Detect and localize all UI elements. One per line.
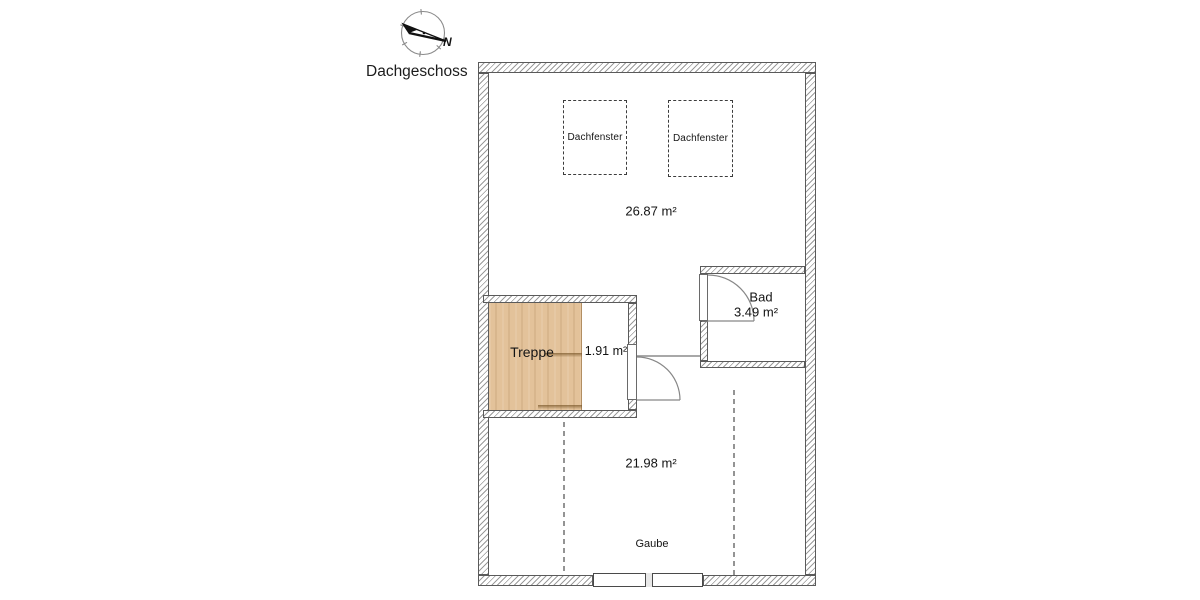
wall-stairs-right-upper (628, 303, 637, 346)
stair-door-arc (637, 357, 680, 400)
stair-door-leaf (627, 344, 637, 400)
stair-step-edge (538, 405, 582, 409)
attic-room-area-label: 26.87 m² (625, 204, 676, 219)
wall-outer-bottom-right (703, 575, 816, 586)
bathroom-name-label: Bad (749, 290, 772, 305)
stairs-landing-area-label: 1.91 m² (585, 344, 627, 358)
wall-bath-top (700, 266, 805, 274)
lower-room-area-label: 21.98 m² (625, 456, 676, 471)
skylight-label-2: Dachfenster (673, 133, 728, 144)
skylight-label-1: Dachfenster (567, 132, 622, 143)
wall-outer-left (478, 73, 489, 575)
page-title: Dachgeschoss (366, 63, 468, 81)
wall-outer-bottom-left (478, 575, 593, 586)
skylight-box-2: Dachfenster (668, 100, 733, 177)
compass-icon: N (400, 9, 452, 57)
compass-needle-tip (403, 24, 418, 33)
dormer-window-mullion (645, 573, 653, 587)
skylight-box-1: Dachfenster (563, 100, 627, 175)
wall-stairs-bottom (483, 410, 637, 418)
floor-plan-page: Dachgeschoss Dachfenster Dachfenster (0, 0, 1200, 600)
wall-outer-right (805, 73, 816, 575)
bath-door-leaf (699, 274, 708, 321)
wall-outer-top (478, 62, 816, 73)
wall-stairs-top (483, 295, 637, 303)
compass-north-label: N (443, 35, 452, 49)
wall-bath-left (700, 321, 708, 361)
bathroom-area-label: 3.49 m² (734, 305, 778, 320)
dormer-label: Gaube (635, 538, 668, 550)
wall-bath-bottom (700, 361, 805, 368)
compass-needle (403, 24, 446, 41)
stairs-label: Treppe (510, 344, 554, 360)
